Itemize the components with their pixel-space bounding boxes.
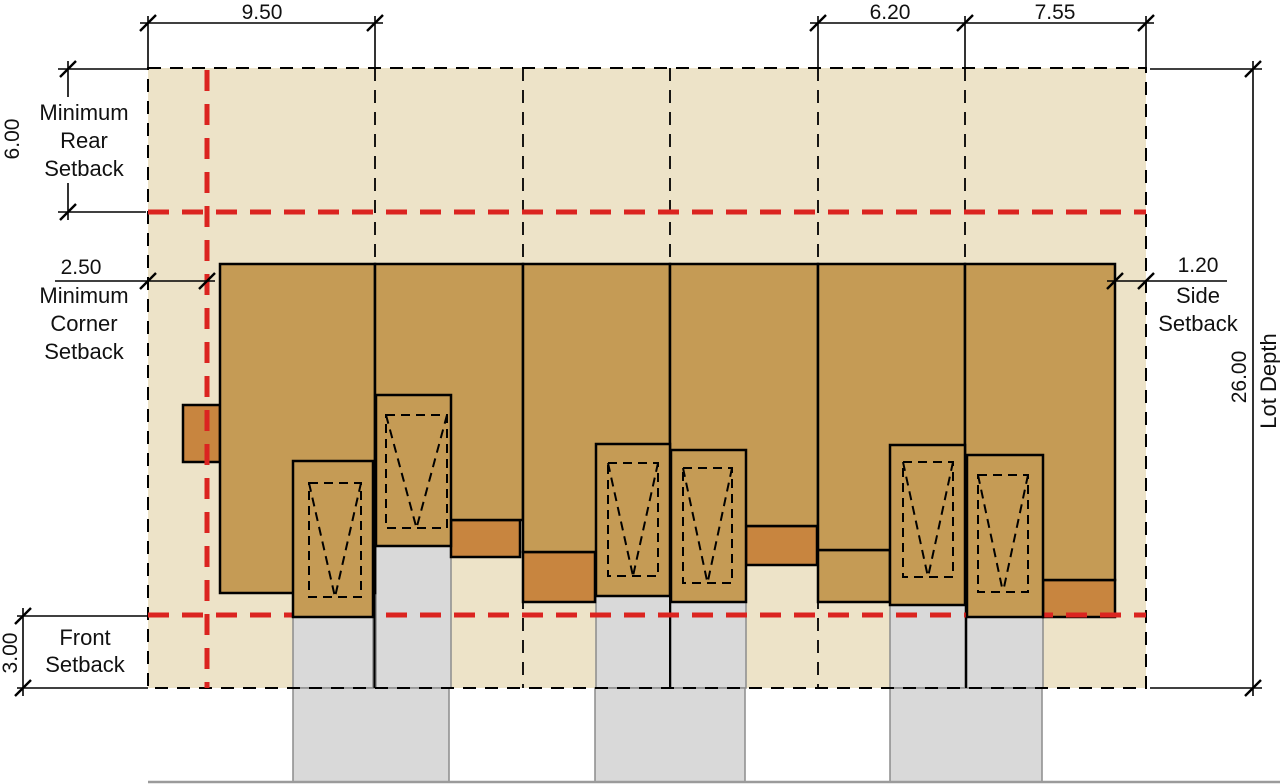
front-section-unit-5: [818, 550, 890, 602]
garage-unit-5: [890, 445, 965, 605]
driveway-apron-c: [890, 688, 1042, 782]
dim-rear-setback: 6.00 Minimum Rear Setback: [1, 61, 148, 220]
driveway-apron-a: [293, 688, 449, 782]
dim-value: 7.55: [1035, 1, 1076, 24]
dim-value: 9.50: [242, 1, 283, 24]
dim-interior-lot-widths: 6.20 7.55: [810, 1, 1154, 68]
garage-unit-6: [967, 455, 1043, 617]
dim-value: 3.00: [0, 633, 22, 674]
dim-lot-depth: 26.00 Lot Depth: [1150, 61, 1280, 696]
site-plan-diagram: 9.50 6.20 7.55 6.00 Minimum Rear Setback: [0, 0, 1280, 784]
porch-unit-4: [746, 526, 817, 565]
lot-depth-label: Lot Depth: [1256, 333, 1280, 428]
garage-unit-3: [596, 444, 670, 596]
dim-front-setback: 3.00 Front Setback: [0, 608, 148, 696]
rear-setback-label: Minimum: [39, 100, 128, 125]
front-setback-label: Front: [59, 625, 110, 650]
svg-text:Corner: Corner: [50, 311, 117, 336]
garage-unit-4: [671, 450, 746, 602]
porch-unit-3: [523, 552, 595, 602]
dim-value: 6.20: [870, 1, 911, 24]
svg-text:Setback: Setback: [44, 339, 124, 364]
dim-value: 26.00: [1228, 351, 1251, 404]
garage-unit-2: [376, 395, 451, 546]
dim-value: 2.50: [61, 256, 102, 279]
dim-value: 6.00: [1, 119, 24, 160]
svg-text:Setback: Setback: [44, 156, 124, 181]
driveway-unit-6: [967, 617, 1043, 688]
side-setback-label: Side: [1176, 283, 1220, 308]
driveway-unit-3: [596, 596, 670, 688]
driveway-unit-1: [293, 617, 373, 688]
driveway-apron-b: [595, 688, 745, 782]
site-plan-svg: 9.50 6.20 7.55 6.00 Minimum Rear Setback: [0, 0, 1280, 784]
dim-value: 1.20: [1178, 254, 1219, 277]
corner-setback-label: Minimum: [39, 283, 128, 308]
porch-unit-6: [1043, 580, 1115, 617]
porch-unit-1: [183, 405, 220, 462]
garage-unit-1: [293, 461, 373, 617]
dim-corner-lot-width: 9.50: [140, 1, 383, 68]
porch-unit-2: [451, 520, 520, 557]
svg-text:Setback: Setback: [45, 652, 125, 677]
svg-text:Setback: Setback: [1158, 311, 1238, 336]
svg-text:Rear: Rear: [60, 128, 108, 153]
